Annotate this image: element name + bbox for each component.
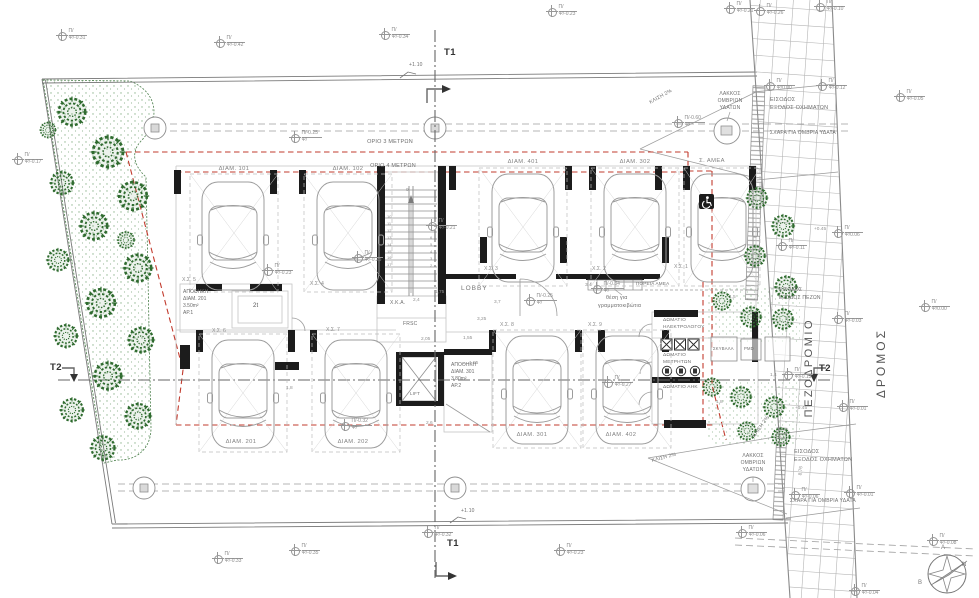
crosshair-icon [526,297,535,306]
survey-point-marker: Π/Ψ/-0.13 [784,368,813,381]
road-label: ΔΡΟΜΟΣ [878,328,884,398]
meters-room-line1: ΔΩΜΑΤΙΟ [663,353,686,359]
crosshair-icon [214,555,223,564]
survey-point-elevation: Ψ/-0.31 [69,36,87,42]
survey-point-elevation: Ψ/-0.21 [439,226,457,232]
crosshair-icon [766,82,775,91]
tree-icon [771,427,791,447]
survey-point-elevation: Ψ/-0.27 [615,383,633,389]
survey-point-marker: Π/Ψ/-0.06 [738,526,767,539]
meters-room-line2: ΜΕΤΡΗΤΩΝ [663,360,691,366]
vehicle-entry-bottom-line2: ΕΞΟΔΟΣ ΟΧΗΜΑΤΩΝ [794,457,852,463]
crosshair-icon [784,371,793,380]
tree-icon [127,326,155,354]
dimension-label: 1,4 [770,373,777,378]
survey-point-marker: Π/Ψ/-0.01 [839,400,868,413]
survey-point-marker: Π/Ψ/0.00 [766,79,795,92]
crosshair-icon [738,529,747,538]
survey-point-marker: Π/Ψ/-0.21 [726,2,755,15]
parking-unit-label: ΔΙΑΜ. 102 [333,166,364,172]
parking-spot-code: Χ.Σ. 8 [500,322,514,328]
survey-point-elevation: Ψ/-0.23 [567,551,585,557]
tree-icon [85,287,117,319]
survey-point-marker: Π/-0.25Ψ/ [291,131,322,144]
survey-point-elevation: Ψ/-0.17 [25,160,43,166]
survey-point-elevation: Ψ/-0.03 [845,319,863,325]
parking-spot-code: Χ.Σ. 7 [326,327,340,333]
ahk-room-label: ΔΩΜΑΤΙΟ ΑΗΚ [663,385,698,391]
survey-point-elevation: Ψ/-0.01 [850,407,868,413]
car-icon [600,174,671,282]
tree-icon [117,180,149,212]
tree-icon [771,214,795,238]
crosshair-icon [428,222,437,231]
dimension-label: 3,4 [585,283,592,288]
survey-point-marker: Π/Ψ/-0.23 [264,264,293,277]
frsc-label: FRSC [403,321,417,327]
level-annotation-top: +1.10 [409,62,423,68]
survey-point-marker: Π/Ψ/-0.35 [291,544,320,557]
electrician-room-line2: ΗΛΕΚΤΡΟΛΟΓΟΥ [663,325,705,331]
tree-icon [744,245,767,268]
crosshair-icon [929,537,938,546]
tree-icon [56,96,87,127]
parking-unit-label: ΔΙΑΜ. 202 [338,439,369,445]
parking-unit-label: ΔΙΑΜ. 301 [517,432,548,438]
rainpit-top-line3: ΥΔΑΤΩΝ [720,105,741,111]
tree-icon [117,231,136,250]
survey-point-marker: Π/Ψ/-0.04 [851,584,880,597]
survey-point-elevation: Ψ/0.06 [845,233,863,239]
survey-point-marker: Π/Ψ/-0.11 [778,239,807,252]
rainpit-top-line1: ΛΑΚΚΟΣ [719,91,740,97]
survey-point-marker: Π/Ψ/-0.21 [428,219,457,232]
crosshair-icon [424,529,433,538]
section-marker-t2-right: T2 [819,366,831,372]
tree-icon [90,435,117,462]
survey-point-marker: Π/Ψ/-0.33 [214,552,243,565]
compass-letter-south: Ν [962,562,966,568]
crosshair-icon [58,32,67,41]
parking-spot-code: Χ.Σ. 1 [674,264,688,270]
crosshair-icon [778,242,787,251]
survey-point-elevation: Ψ/-0.10 [827,7,845,13]
survey-point-marker: Π/-0.25Ψ/ [526,294,557,307]
survey-point-elevation: Ψ/ [352,426,372,432]
crosshair-icon [341,422,350,431]
electrical-boxes [661,339,699,350]
survey-point-marker: Π/Ψ/-0.23 [548,5,577,18]
crosshair-icon [291,134,300,143]
crosshair-icon [726,5,735,14]
stair-step-number: 12 [387,228,391,235]
crosshair-icon [354,254,363,263]
stair-step-number: 17 [387,262,391,269]
survey-point-marker: Π/Ψ/-0.31 [58,29,87,42]
survey-point-elevation: Ψ/ [537,301,557,307]
survey-point-marker: Π/-0.32Ψ/ [341,419,372,432]
parking-spot-code: Χ.Σ. 4 [310,281,324,287]
dimension-label: 1,8 [286,386,293,391]
dimension-label: +0.45 [795,406,807,411]
survey-point-elevation: Ψ/-0.25 [365,258,383,264]
survey-point-marker: Π/-0.34Ψ/ [593,282,624,295]
survey-point-marker: Π/Ψ/-0.34 [381,28,410,41]
survey-point-elevation: Ψ/0.00 [932,307,950,313]
crosshair-icon [291,547,300,556]
survey-point-elevation: Ψ/-0.05 [907,97,925,103]
dimension-label: +0.45 [814,227,826,232]
crosshair-icon [674,119,683,128]
survey-point-marker: Π/Ψ/-0.06 [791,488,820,501]
car-icon [313,182,384,290]
tree-icon [712,291,732,311]
crosshair-icon [14,156,23,165]
pedestrian-entry-line2: ΕΞΟΔΟΣ ΠΕΖΩΝ [779,295,821,301]
tree-icon [730,386,753,409]
mailbox-note-line1: θέση για [606,295,627,301]
parking-unit-label: ΔΙΑΜ. 401 [508,159,539,165]
storage1-line4: ΑΡ.1 [183,310,193,317]
level-annotation-bottom: +1.10 [461,508,475,514]
survey-point-elevation: Ψ/-0.08 [940,541,958,547]
stair-step-number: 2 [430,263,432,270]
crosshair-icon [548,8,557,17]
compass-letter-north: Β [918,580,922,586]
crosshair-icon [816,3,825,12]
stair-step-number: 14 [387,242,391,249]
survey-point-marker: Π/Ψ/0.00 [921,300,950,313]
tank-label: 2t [253,303,258,309]
crosshair-icon [216,39,225,48]
tree-icon [90,134,125,169]
storage2-line2: ΔΙΑΜ. 301 [451,369,474,376]
grate-label-top: ΣΧΑΡΑ ΓΙΑ ΟΜΒΡΙΑ ΥΔΑΤΑ [770,130,836,136]
amea-route-label: ΠΟΡΕΙΑ ΑΜΕΑ [636,281,669,287]
survey-point-marker: Π/Ψ/-0.42 [216,36,245,49]
parking-unit-label: ΔΙΑΜ. 402 [606,432,637,438]
crosshair-icon [851,587,860,596]
survey-point-marker: Π/Ψ/-0.27 [604,376,633,389]
tree-icon [39,121,57,139]
trees-layer [39,96,798,461]
vehicle-entry-top-line2: ΕΞΟΔΟΣ ΟΧΗΜΑΤΩΝ [770,105,828,111]
electrician-room-line1: ΔΩΜΑΤΙΟ [663,318,686,324]
survey-point-elevation: Ψ/-0.01 [857,493,875,499]
dimension-label: 8,76 [799,466,805,476]
storage1-line1: ΑΠΟΘΗΚΗ [183,289,208,296]
survey-point-elevation: Ψ/-0.23 [559,12,577,18]
boundary-label-3m: ΟΡΙΟ 3 ΜΕΤΡΩΝ [367,139,413,145]
survey-point-elevation: Ψ/-0.23 [275,271,293,277]
parking-spot-code: Χ.Σ. 9 [588,322,602,328]
tree-icon [59,397,85,423]
lobby-label: LOBBY [461,286,488,292]
site-plan-drawing: ΟΡΙΟ 3 ΜΕΤΡΩΝ ΟΡΙΟ 4 ΜΕΤΡΩΝ T1 T1 T2 T2 … [0,0,979,598]
survey-point-elevation: Ψ/ [604,289,624,295]
stair-step-number: 15 [387,249,391,256]
survey-point-marker: Π/Ψ/-0.12 [818,79,847,92]
parking-unit-label: ΔΙΑΜ. 101 [219,166,250,172]
survey-point-marker: Π/-0.60Ψ/ [674,116,705,129]
tree-icon [53,323,79,349]
survey-point-marker: Π/Ψ/-0.17 [14,153,43,166]
stair-step-number: 11 [387,221,391,228]
storage1-line3: 3.50m² [183,303,199,310]
rainpit-bottom-line3: ΥΔΑΤΩΝ [743,467,764,473]
survey-point-elevation: Ψ/-0.12 [829,86,847,92]
stair-numbers-left: 1011121314151617 [387,214,391,269]
tree-icon [78,210,109,241]
survey-point-elevation: Ψ/-0.21 [737,9,755,15]
survey-point-elevation: Ψ/-0.04 [862,591,880,597]
tree-icon [702,377,722,397]
survey-point-elevation: Ψ/-0.06 [802,495,820,501]
survey-point-elevation: Ψ/-0.34 [392,35,410,41]
car-icon [502,336,573,444]
crosshair-icon [834,315,843,324]
survey-point-elevation: Ψ/ [685,123,705,129]
dimension-label: 2,6 [426,421,433,426]
parking-spot-code: Χ.Σ. 6 [212,328,226,334]
car-icon [208,340,279,448]
stair-step-number: 4 [430,249,432,256]
crosshair-icon [846,489,855,498]
pedestrian-entry-line1: ΕΙΣΟΔΟΣ [779,287,802,293]
car-icon [488,174,559,282]
tree-icon [122,252,153,283]
dimension-label: 1,75 [435,290,444,295]
crosshair-icon [604,379,613,388]
parking-unit-label: ΔΙΑΜ. 302 [620,159,651,165]
crosshair-icon [556,547,565,556]
crosshair-icon [264,267,273,276]
parking-unit-label: ΔΙΑΜ. 201 [226,439,257,445]
stair-top-number: 9 [406,188,409,193]
survey-point-elevation: Ψ/-0.35 [302,551,320,557]
dimension-label: 2,05 [421,337,430,342]
crosshair-icon [896,93,905,102]
survey-point-marker: Π/Ψ/-0.25 [354,251,383,264]
survey-point-marker: Π/Ψ/-0.10 [816,0,845,13]
tree-icon [746,187,769,210]
tree-icon [46,248,70,272]
vehicle-entry-top-line1: ΕΙΣΟΔΟΣ [770,97,795,103]
survey-point-marker: Π/Ψ/-0.05 [896,90,925,103]
dimension-label: 1,8 [716,400,723,405]
survey-point-marker: Π/Ψ/-0.26 [756,4,785,17]
survey-point-marker: Π/Ψ/0.06 [834,226,863,239]
tree-icon [740,306,763,329]
tree-icon [49,170,75,196]
vehicle-entry-bottom-line1: ΕΙΣΟΔΟΣ [794,449,819,455]
dimension-label: 2,4 [413,298,420,303]
survey-point-elevation: Ψ/-0.26 [767,11,785,17]
dimension-label: 3,7 [494,300,501,305]
mailbox-note-line2: γραμματοκιβώτια [598,303,641,309]
survey-point-marker: Π/Ψ/-0.32 [424,526,453,539]
survey-point-elevation: Ψ/0.00 [777,86,795,92]
survey-point-marker: Π/Ψ/-0.01 [846,486,875,499]
tree-icon [92,360,123,391]
garbage-label: ΣΚΥΒΑΛΑ [713,346,734,352]
storage1-line2: ΔΙΑΜ. 201 [183,296,206,303]
survey-point-elevation: Ψ/ [302,138,322,144]
stair-step-number: 5 [430,242,432,249]
parking-spot-code: Χ.Σ. 2 [592,266,606,272]
crosshair-icon [834,229,843,238]
meter-dials [662,366,699,375]
crosshair-icon [921,303,930,312]
survey-point-marker: Π/Ψ/-0.03 [834,312,863,325]
survey-point-elevation: Ψ/-0.32 [435,533,453,539]
stair-step-number: 13 [387,235,391,242]
tree-icon [772,308,795,331]
stair-numbers-right: 65432 [430,235,432,270]
crosshair-icon [839,403,848,412]
dimension-label: 1,85 [469,361,478,366]
survey-point-elevation: Ψ/-0.13 [795,375,813,381]
crosshair-icon [791,491,800,500]
wheelchair-icon [699,194,714,209]
section-marker-t1-top: T1 [444,50,456,56]
parking-spot-code: Χ.Σ. 3 [484,266,498,272]
rainpit-bottom-line2: ΟΜΒΡΙΩΝ [741,460,766,466]
dimension-label: 1,55 [463,336,472,341]
crosshair-icon [593,285,602,294]
survey-point-marker: Π/Ψ/-0.23 [556,544,585,557]
stair-step-number: 3 [430,256,432,263]
parking-unit-label: Σ. ΑΜΕΑ [699,158,725,164]
pmd-label: PMD [744,346,754,352]
parking-spot-code: Χ.Σ. 5 [182,277,196,283]
storage2-line4: ΑΡ.2 [451,383,461,390]
compass-rose [928,555,967,593]
section-marker-t2-left: T2 [50,365,62,371]
survey-point-elevation: Ψ/-0.33 [225,559,243,565]
survey-point-elevation: Ψ/-0.11 [789,246,807,252]
boundary-label-4m: ΟΡΙΟ 4 ΜΕΤΡΩΝ [370,163,416,169]
stair-step-number: 6 [430,235,432,242]
stair-step-number: 10 [387,214,391,221]
survey-point-marker: Π/Ψ/-0.08 [929,534,958,547]
xka-label: Χ.Κ.Α. [390,300,405,306]
lift-label: LIFT [410,391,420,397]
tree-icon [124,402,152,430]
crosshair-icon [818,82,827,91]
crosshair-icon [381,31,390,40]
car-icon [321,340,392,448]
section-marker-t1-bottom: T1 [447,541,459,547]
survey-point-elevation: Ψ/-0.42 [227,43,245,49]
survey-point-elevation: Ψ/-0.06 [749,533,767,539]
storage2-line3: 3.80m² [451,376,467,383]
rainpit-bottom-line1: ΛΑΚΚΟΣ [742,453,763,459]
rainpit-top-line2: ΟΜΒΡΙΩΝ [718,98,743,104]
stair-step-number: 16 [387,255,391,262]
dimension-label: 3,25 [477,317,486,322]
crosshair-icon [756,7,765,16]
dimension-label: 1,5 [729,295,736,300]
